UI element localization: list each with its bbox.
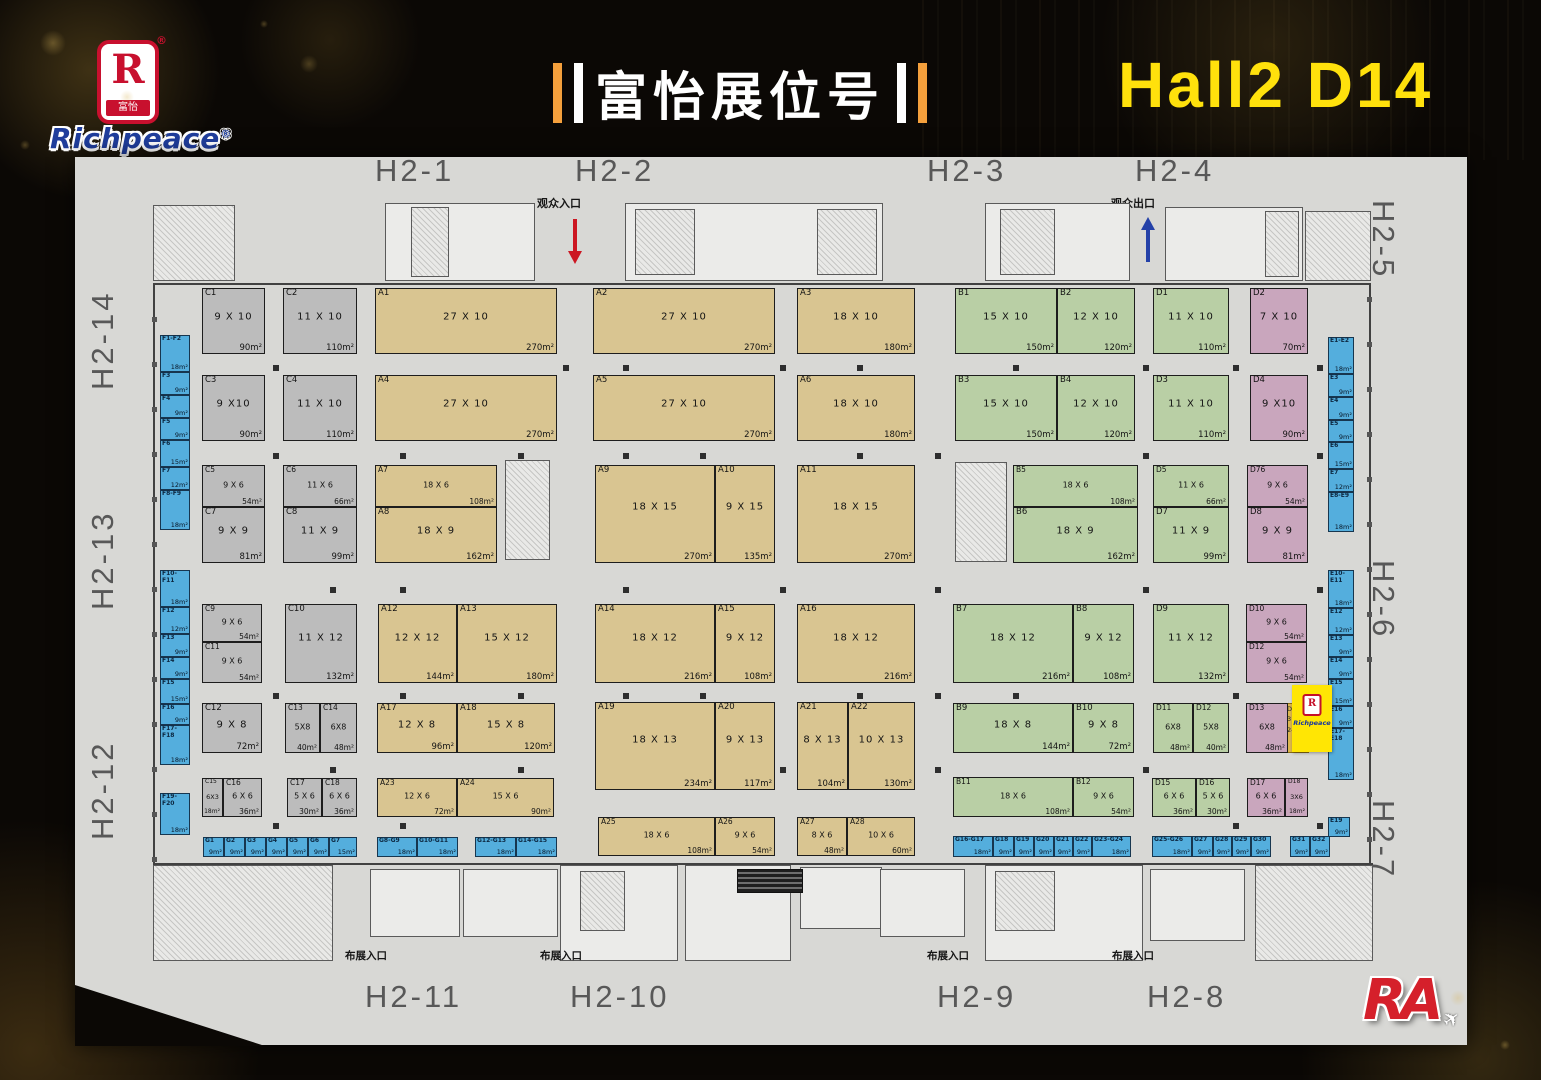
pillar-icon bbox=[273, 453, 279, 459]
wall-column-tick bbox=[152, 677, 157, 682]
booth-dimensions: 5 X 6 bbox=[1197, 792, 1229, 801]
wall-column-tick bbox=[152, 407, 157, 412]
booth-D12: D129 X 654m² bbox=[1246, 642, 1307, 683]
booth-id: G12-G13 bbox=[477, 838, 506, 845]
booth-id: D12 bbox=[1196, 704, 1211, 713]
booth-dimensions: 9 X 6 bbox=[1248, 480, 1307, 489]
registered-mark-icon: ® bbox=[220, 128, 232, 141]
booth-area: 66m² bbox=[1206, 498, 1226, 506]
booth-id: E1-E2 bbox=[1330, 338, 1349, 345]
booth-area: 9m² bbox=[293, 849, 306, 856]
booth-area: 150m² bbox=[1026, 431, 1054, 440]
booth-F3: F39m² bbox=[160, 372, 190, 395]
booth-area: 72m² bbox=[236, 743, 259, 752]
booth-B11: B1118 X 6108m² bbox=[953, 777, 1073, 817]
booth-dimensions: 11 X 6 bbox=[1154, 480, 1228, 489]
booth-area: 9m² bbox=[1339, 649, 1352, 656]
booth-A13: A1315 X 12180m² bbox=[457, 604, 557, 683]
building-structure bbox=[411, 207, 449, 277]
booth-dimensions: 18 X 9 bbox=[376, 526, 496, 537]
booth-area: 9m² bbox=[1198, 849, 1211, 856]
booth-id: B4 bbox=[1060, 376, 1071, 386]
booth-dimensions: 18 X 15 bbox=[596, 502, 714, 513]
booth-D76: D769 X 654m² bbox=[1247, 465, 1308, 507]
booth-D11: D116X848m² bbox=[1153, 703, 1193, 753]
booth-id: G5 bbox=[289, 838, 298, 845]
booth-area: 54m² bbox=[1111, 808, 1131, 816]
richpeace-mini-name: Richpeace bbox=[1292, 719, 1332, 727]
booth-G8-G9: G8-G918m² bbox=[377, 837, 417, 857]
building-structure bbox=[1265, 211, 1299, 277]
booth-id: G32 bbox=[1312, 837, 1325, 844]
booth-area: 9m² bbox=[230, 849, 243, 856]
booth-A1: A127 X 10270m² bbox=[375, 288, 557, 354]
booth-dimensions: 18 X 6 bbox=[954, 791, 1072, 800]
booth-area: 81m² bbox=[1282, 553, 1305, 562]
wall-column-tick bbox=[1367, 297, 1372, 302]
booth-area: 110m² bbox=[326, 344, 354, 353]
booth-id: A1 bbox=[378, 289, 389, 299]
booth-area: 36m² bbox=[239, 808, 259, 816]
booth-D16: D165 X 630m² bbox=[1196, 778, 1230, 817]
booth-id: A6 bbox=[800, 376, 811, 386]
booth-A6: A618 X 10180m² bbox=[797, 375, 915, 441]
booth-C17: C175 X 630m² bbox=[287, 778, 322, 817]
booth-id: G22 bbox=[1075, 837, 1088, 844]
booth-id: E8-E9 bbox=[1330, 493, 1349, 500]
booth-area: 48m² bbox=[824, 847, 844, 855]
richpeace-mini-logo-icon: R bbox=[1303, 694, 1322, 716]
booth-area: 110m² bbox=[1198, 344, 1226, 353]
booth-dimensions: 9 X 6 bbox=[203, 480, 264, 489]
booth-dimensions: 18 X 6 bbox=[1014, 480, 1137, 489]
booth-area: 108m² bbox=[469, 498, 494, 506]
booth-area: 60m² bbox=[892, 847, 912, 855]
booth-B7: B718 X 12216m² bbox=[953, 604, 1073, 683]
booth-dimensions: 27 X 10 bbox=[376, 398, 556, 409]
booth-id: G1 bbox=[205, 838, 214, 845]
pillar-icon bbox=[1143, 587, 1149, 593]
booth-area: 9m² bbox=[1256, 849, 1269, 856]
wall-column-tick bbox=[152, 722, 157, 727]
hall-label-h2-4: H2-4 bbox=[1135, 153, 1214, 189]
booth-D17: D176 X 636m² bbox=[1247, 778, 1285, 817]
booth-id: B12 bbox=[1076, 778, 1091, 787]
bokeh-light-decoration bbox=[1500, 1040, 1510, 1050]
booth-id: A28 bbox=[850, 818, 865, 827]
bokeh-light-decoration bbox=[300, 55, 318, 73]
booth-dimensions: 9 X 8 bbox=[1074, 719, 1133, 730]
booth-area: 30m² bbox=[299, 808, 319, 816]
pillar-icon bbox=[1233, 693, 1239, 699]
booth-area: 18m² bbox=[204, 809, 220, 816]
booth-C11: C119 X 654m² bbox=[202, 642, 262, 683]
booth-area: 120m² bbox=[524, 743, 552, 752]
booth-dimensions: 18 X 12 bbox=[954, 633, 1072, 644]
booth-id: C16 bbox=[226, 779, 241, 788]
booth-G21: G219m² bbox=[1054, 836, 1073, 857]
building-structure bbox=[153, 205, 235, 281]
title-bar-right-white bbox=[897, 63, 906, 123]
building-structure bbox=[635, 209, 695, 275]
booth-C12: C129 X 872m² bbox=[202, 703, 262, 753]
booth-A23: A2312 X 672m² bbox=[377, 778, 457, 817]
booth-G4: G49m² bbox=[266, 837, 287, 857]
page-title: 富怡展位号 bbox=[553, 55, 927, 130]
building-structure bbox=[955, 462, 1007, 562]
booth-area: 9m² bbox=[1217, 849, 1230, 856]
booth-area: 9m² bbox=[1339, 671, 1352, 678]
hall-label-h2-8: H2-8 bbox=[1147, 979, 1226, 1015]
wall-column-tick bbox=[1367, 432, 1372, 437]
booth-C14: C146X848m² bbox=[320, 703, 357, 753]
booth-area: 9m² bbox=[1339, 389, 1352, 396]
building-structure bbox=[800, 867, 882, 929]
booth-dimensions: 11 X 6 bbox=[284, 480, 356, 489]
floor-plan: 观众入口 观众出口 D 3 2- R Richpeace C19 X 1090m… bbox=[75, 157, 1467, 1045]
booth-id: A10 bbox=[718, 466, 735, 476]
booth-dimensions: 6 X 6 bbox=[224, 792, 261, 801]
pillar-icon bbox=[780, 365, 786, 371]
pillar-icon bbox=[330, 767, 336, 773]
booth-F12: F1212m² bbox=[160, 607, 190, 634]
booth-D18: D183X618m² bbox=[1285, 778, 1308, 817]
booth-dimensions: 6X3 bbox=[203, 793, 222, 801]
booth-A5: A527 X 10270m² bbox=[593, 375, 775, 441]
booth-area: 9m² bbox=[209, 849, 222, 856]
booth-dimensions: 6X8 bbox=[1154, 722, 1192, 731]
pillar-icon bbox=[1233, 365, 1239, 371]
booth-D8: D89 X 981m² bbox=[1247, 507, 1308, 563]
booth-area: 36m² bbox=[334, 808, 354, 816]
wall-column-tick bbox=[152, 857, 157, 862]
wall-column-tick bbox=[1367, 792, 1372, 797]
building-structure bbox=[737, 869, 803, 893]
booth-area: 12m² bbox=[1335, 484, 1352, 491]
booth-A15: A159 X 12108m² bbox=[715, 604, 775, 683]
booth-dimensions: 8 X 6 bbox=[798, 831, 846, 840]
booth-area: 54m² bbox=[242, 498, 262, 506]
booth-area: 48m² bbox=[1265, 744, 1285, 752]
title-bar-right-orange bbox=[918, 63, 927, 123]
booth-id: D16 bbox=[1199, 779, 1214, 788]
booth-area: 132m² bbox=[1198, 673, 1226, 682]
booth-id: G8-G9 bbox=[379, 838, 400, 845]
booth-area: 72m² bbox=[434, 808, 454, 816]
booth-area: 12m² bbox=[1335, 627, 1352, 634]
hall-label-h2-10: H2-10 bbox=[570, 979, 669, 1015]
pillar-icon bbox=[700, 693, 706, 699]
visitor-entrance-label: 观众入口 bbox=[537, 195, 581, 211]
booth-id: A24 bbox=[460, 779, 475, 788]
booth-area: 110m² bbox=[1198, 431, 1226, 440]
pillar-icon bbox=[1143, 453, 1149, 459]
pillar-icon bbox=[1143, 767, 1149, 773]
booth-D5: D511 X 666m² bbox=[1153, 465, 1229, 507]
booth-id: D10 bbox=[1249, 605, 1264, 614]
booth-id: A3 bbox=[800, 289, 811, 299]
booth-area: 117m² bbox=[744, 780, 772, 789]
booth-area: 18m² bbox=[439, 849, 456, 856]
booth-id: D13 bbox=[1249, 704, 1264, 713]
booth-dimensions: 11 X 9 bbox=[284, 526, 356, 537]
booth-dimensions: 6 X 6 bbox=[323, 792, 356, 801]
booth-dimensions: 27 X 10 bbox=[594, 311, 774, 322]
booth-id: G21 bbox=[1056, 837, 1069, 844]
pillar-icon bbox=[700, 453, 706, 459]
booth-C13: C135X840m² bbox=[285, 703, 320, 753]
booth-area: 18m² bbox=[398, 849, 415, 856]
booth-id: D3 bbox=[1156, 376, 1168, 386]
booth-G20: G209m² bbox=[1034, 836, 1054, 857]
building-structure bbox=[1305, 211, 1371, 281]
booth-area: 108m² bbox=[1103, 673, 1131, 682]
booth-id: G29 bbox=[1234, 837, 1247, 844]
booth-id: C6 bbox=[286, 466, 296, 475]
hall-location-badge: Hall2 D14 bbox=[1118, 48, 1433, 122]
booth-area: 81m² bbox=[239, 553, 262, 562]
booth-E10-E11: E10-E1118m² bbox=[1328, 570, 1354, 608]
booth-area: 54m² bbox=[752, 847, 772, 855]
booth-C5: C59 X 654m² bbox=[202, 465, 265, 507]
booth-A28: A2810 X 660m² bbox=[847, 817, 915, 856]
booth-C8: C811 X 999m² bbox=[283, 507, 357, 563]
entrance-arrow-down-icon bbox=[568, 219, 582, 265]
booth-id: E14 bbox=[1330, 658, 1342, 665]
booth-area: 30m² bbox=[1207, 808, 1227, 816]
logo-r-glyph: R bbox=[101, 46, 155, 93]
title-bar-left-orange bbox=[553, 63, 562, 123]
booth-A25: A2518 X 6108m² bbox=[598, 817, 715, 856]
booth-id: A2 bbox=[596, 289, 607, 299]
hall-label-h2-11: H2-11 bbox=[365, 979, 462, 1015]
pillar-icon bbox=[935, 587, 941, 593]
richpeace-logo-badge: R 富怡 ® bbox=[97, 40, 159, 124]
booth-id: D12 bbox=[1249, 643, 1264, 652]
booth-G5: G59m² bbox=[287, 837, 308, 857]
booth-area: 18m² bbox=[1173, 849, 1190, 856]
booth-dimensions: 9 X 10 bbox=[203, 311, 264, 322]
booth-id: A13 bbox=[460, 605, 477, 615]
booth-id: A4 bbox=[378, 376, 389, 386]
booth-E13: E139m² bbox=[1328, 635, 1354, 657]
booth-id: D1 bbox=[1156, 289, 1168, 299]
booth-dimensions: 18 X 8 bbox=[954, 719, 1072, 730]
booth-area: 18m² bbox=[171, 757, 188, 764]
poster: R 富怡 ® Richpeace® 富怡展位号 Hall2 D14 观众入口 观… bbox=[0, 0, 1541, 1080]
hall-label-h2-6: H2-6 bbox=[1365, 560, 1401, 639]
booth-id: B3 bbox=[958, 376, 969, 386]
booth-area: 180m² bbox=[884, 344, 912, 353]
booth-area: 15m² bbox=[338, 849, 355, 856]
booth-dimensions: 11 X 12 bbox=[286, 633, 356, 644]
booth-dimensions: 15 X 6 bbox=[458, 792, 553, 801]
booth-area: 9m² bbox=[1039, 849, 1052, 856]
wall-column-tick bbox=[1367, 342, 1372, 347]
bokeh-light-decoration bbox=[260, 20, 268, 28]
booth-G25-G26: G25-G2618m² bbox=[1152, 836, 1192, 857]
building-structure bbox=[370, 869, 460, 937]
booth-id: F4 bbox=[162, 396, 170, 403]
booth-dimensions: 8 X 13 bbox=[798, 734, 847, 745]
booth-dimensions: 18 X 10 bbox=[798, 398, 914, 409]
booth-dimensions: 18 X 13 bbox=[596, 734, 714, 745]
booth-G16-G17: G16-G1718m² bbox=[953, 836, 993, 857]
pillar-icon bbox=[623, 587, 629, 593]
booth-C1: C19 X 1090m² bbox=[202, 288, 265, 354]
booth-F5: F59m² bbox=[160, 418, 190, 440]
booth-id: A19 bbox=[598, 703, 615, 713]
booth-id: E19 bbox=[1330, 818, 1342, 825]
pillar-icon bbox=[623, 365, 629, 371]
booth-dimensions: 9 X 13 bbox=[716, 734, 774, 745]
booth-area: 99m² bbox=[331, 553, 354, 562]
booth-id: B9 bbox=[956, 704, 967, 714]
pillar-icon bbox=[518, 693, 524, 699]
building-structure bbox=[385, 203, 535, 281]
booth-dimensions: 11 X 9 bbox=[1154, 526, 1228, 537]
booth-B12: B129 X 654m² bbox=[1073, 777, 1134, 817]
booth-area: 108m² bbox=[1045, 808, 1070, 816]
booth-D4: D49 X1090m² bbox=[1250, 375, 1308, 441]
booth-area: 18m² bbox=[171, 599, 188, 606]
booth-G6: G69m² bbox=[308, 837, 329, 857]
booth-A9: A918 X 15270m² bbox=[595, 465, 715, 563]
booth-dimensions: 3X6 bbox=[1286, 793, 1307, 801]
wall-column-tick bbox=[1367, 387, 1372, 392]
booth-area: 15m² bbox=[1335, 698, 1352, 705]
booth-dimensions: 6 X 6 bbox=[1153, 792, 1195, 801]
pillar-icon bbox=[273, 823, 279, 829]
setup-entrance-label: 布展入口 bbox=[927, 948, 969, 963]
pillar-icon bbox=[935, 453, 941, 459]
booth-area: 9m² bbox=[314, 849, 327, 856]
booth-A24: A2415 X 690m² bbox=[457, 778, 554, 817]
booth-id: C11 bbox=[205, 643, 220, 652]
booth-area: 9m² bbox=[251, 849, 264, 856]
pillar-icon bbox=[1013, 693, 1019, 699]
booth-area: 120m² bbox=[1104, 344, 1132, 353]
booth-D2: D27 X 1070m² bbox=[1250, 288, 1308, 354]
booth-dimensions: 27 X 10 bbox=[376, 311, 556, 322]
booth-dimensions: 9 X 6 bbox=[716, 831, 774, 840]
booth-dimensions: 9 X10 bbox=[1251, 398, 1307, 409]
booth-B4: B412 X 10120m² bbox=[1057, 375, 1135, 441]
hall-label-h2-9: H2-9 bbox=[937, 979, 1016, 1015]
booth-dimensions: 6X8 bbox=[321, 722, 356, 731]
booth-id: B10 bbox=[1076, 704, 1093, 714]
booth-dimensions: 9 X 6 bbox=[1247, 617, 1306, 626]
booth-G30: G309m² bbox=[1251, 836, 1271, 857]
building-structure bbox=[153, 865, 333, 961]
booth-dimensions: 9 X 8 bbox=[203, 719, 261, 730]
booth-id: C13 bbox=[288, 704, 303, 713]
booth-A17: A1712 X 896m² bbox=[377, 703, 457, 753]
booth-area: 9m² bbox=[175, 432, 188, 439]
booth-B6: B618 X 9162m² bbox=[1013, 507, 1138, 563]
booth-id: D11 bbox=[1156, 704, 1171, 713]
booth-B10: B109 X 872m² bbox=[1073, 703, 1134, 753]
booth-dimensions: 5 X 6 bbox=[288, 792, 321, 801]
pillar-icon bbox=[273, 693, 279, 699]
booth-id: G27 bbox=[1194, 837, 1207, 844]
booth-dimensions: 10 X 6 bbox=[848, 831, 914, 840]
booth-area: 234m² bbox=[684, 780, 712, 789]
booth-id: F7 bbox=[162, 468, 170, 475]
booth-C9: C99 X 654m² bbox=[202, 604, 262, 642]
booth-F17-F18: F17-F1818m² bbox=[160, 725, 190, 765]
pillar-icon bbox=[518, 453, 524, 459]
booth-id: F14 bbox=[162, 658, 174, 665]
booth-area: 18m² bbox=[1112, 849, 1129, 856]
booth-area: 18m² bbox=[497, 849, 514, 856]
booth-B3: B315 X 10150m² bbox=[955, 375, 1057, 441]
booth-area: 18m² bbox=[1335, 600, 1352, 607]
booth-dimensions: 7 X 10 bbox=[1251, 311, 1307, 322]
booth-id: A11 bbox=[800, 466, 817, 476]
booth-area: 108m² bbox=[1110, 498, 1135, 506]
booth-area: 270m² bbox=[744, 344, 772, 353]
booth-C15: C156X318m² bbox=[202, 778, 223, 817]
booth-area: 9m² bbox=[999, 849, 1012, 856]
pillar-icon bbox=[400, 693, 406, 699]
booth-id: D17 bbox=[1250, 779, 1265, 788]
booth-area: 15m² bbox=[171, 696, 188, 703]
booth-area: 90m² bbox=[531, 808, 551, 816]
booth-area: 162m² bbox=[466, 553, 494, 562]
booth-E19: E199m² bbox=[1328, 817, 1350, 837]
booth-id: C4 bbox=[286, 376, 297, 386]
booth-area: 18m² bbox=[1335, 772, 1352, 779]
booth-area: 12m² bbox=[171, 626, 188, 633]
booth-id: G7 bbox=[331, 838, 340, 845]
booth-id: F12 bbox=[162, 608, 174, 615]
hall-wall bbox=[153, 283, 155, 865]
building-structure bbox=[880, 869, 965, 937]
booth-dimensions: 11 X 10 bbox=[1154, 398, 1228, 409]
booth-dimensions: 10 X 13 bbox=[849, 734, 914, 745]
booth-E3: E39m² bbox=[1328, 374, 1354, 397]
booth-A7: A718 X 6108m² bbox=[375, 465, 497, 507]
booth-A18: A1815 X 8120m² bbox=[457, 703, 555, 753]
booth-G7: G715m² bbox=[329, 837, 357, 857]
booth-area: 150m² bbox=[1026, 344, 1054, 353]
pillar-icon bbox=[857, 365, 863, 371]
booth-dimensions: 11 X 10 bbox=[1154, 311, 1228, 322]
booth-dimensions: 5X8 bbox=[286, 722, 319, 731]
booth-id: A12 bbox=[381, 605, 398, 615]
booth-F8-F9: F8-F918m² bbox=[160, 490, 190, 530]
booth-A12: A1212 X 12144m² bbox=[378, 604, 457, 683]
booth-A10: A109 X 15135m² bbox=[715, 465, 775, 563]
booth-dimensions: 9 X 15 bbox=[716, 502, 774, 513]
booth-area: 216m² bbox=[1042, 673, 1070, 682]
wall-column-tick bbox=[152, 767, 157, 772]
booth-F15: F1515m² bbox=[160, 679, 190, 704]
bokeh-light-decoration bbox=[40, 30, 66, 56]
booth-area: 9m² bbox=[175, 410, 188, 417]
hall-label-h2-14: H2-14 bbox=[85, 291, 121, 390]
booth-area: 144m² bbox=[426, 673, 454, 682]
booth-G18: G189m² bbox=[993, 836, 1014, 857]
booth-dimensions: 12 X 6 bbox=[378, 792, 456, 801]
booth-dimensions: 15 X 10 bbox=[956, 398, 1056, 409]
booth-A20: A209 X 13117m² bbox=[715, 702, 775, 790]
booth-area: 9m² bbox=[1315, 849, 1328, 856]
booth-id: E6 bbox=[1330, 443, 1338, 450]
booth-C4: C411 X 10110m² bbox=[283, 375, 357, 441]
hall-label-h2-5: H2-5 bbox=[1365, 200, 1401, 279]
